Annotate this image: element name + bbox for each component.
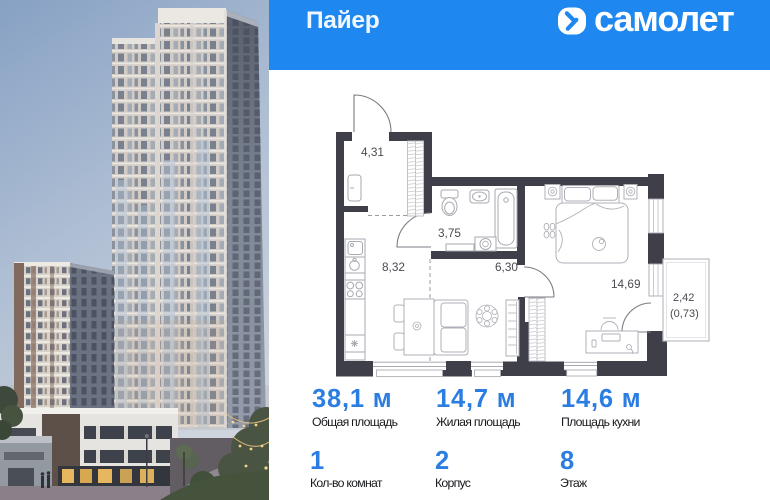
svg-text:4,31: 4,31: [361, 145, 384, 159]
svg-text:14,69: 14,69: [611, 277, 641, 291]
svg-text:3,75: 3,75: [438, 226, 461, 240]
svg-text:6,30: 6,30: [495, 260, 518, 274]
svg-text:(0,73): (0,73): [670, 308, 699, 320]
svg-text:8,32: 8,32: [382, 260, 405, 274]
svg-text:2,42: 2,42: [673, 292, 694, 304]
